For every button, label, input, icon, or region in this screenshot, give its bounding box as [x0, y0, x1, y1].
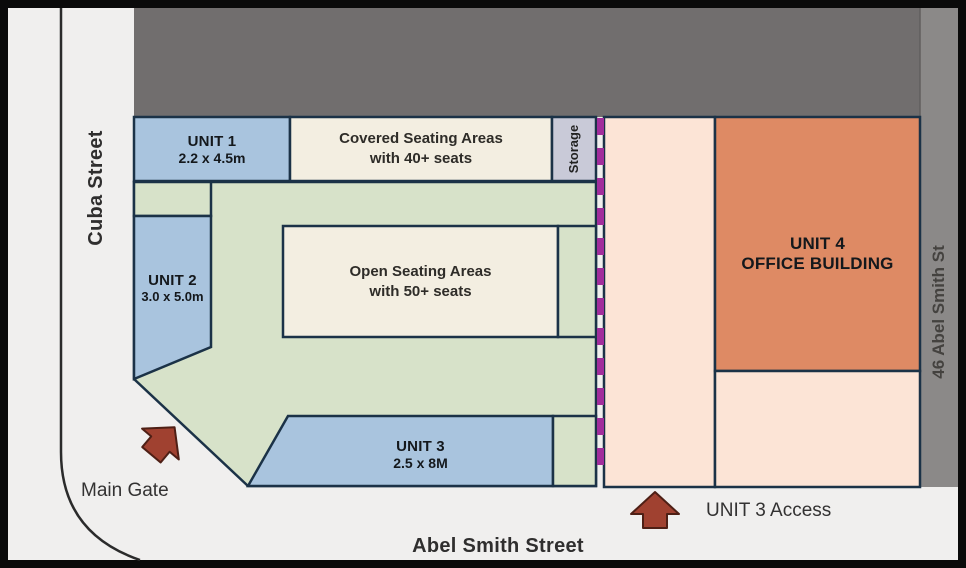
unit2-label: UNIT 2 3.0 x 5.0m — [134, 266, 211, 310]
site-plan: Cuba Street Abel Smith Street 46 Abel Sm… — [0, 0, 966, 568]
abel-smith-46-label: 46 Abel Smith St — [925, 242, 953, 382]
unit3-name: UNIT 3 — [396, 438, 445, 455]
main-gate-label: Main Gate — [81, 480, 169, 502]
unit4-name: UNIT 4 — [790, 234, 845, 254]
covered-seating-line1: Covered Seating Areas — [339, 129, 503, 149]
unit1-name: UNIT 1 — [188, 133, 237, 150]
unit4-type: OFFICE BUILDING — [741, 254, 893, 274]
unit2-dims: 3.0 x 5.0m — [141, 289, 203, 304]
unit3-dims: 2.5 x 8M — [393, 455, 447, 471]
unit1-dims: 2.2 x 4.5m — [179, 150, 246, 166]
unit1-label: UNIT 1 2.2 x 4.5m — [134, 117, 290, 181]
cuba-street-label: Cuba Street — [82, 111, 110, 265]
open-seating-label: Open Seating Areas with 50+ seats — [283, 226, 558, 337]
abel-smith-street-label: Abel Smith Street — [348, 535, 648, 558]
open-seating-line1: Open Seating Areas — [350, 262, 492, 282]
unit3-label: UNIT 3 2.5 x 8M — [288, 428, 553, 480]
small-green-plot — [134, 182, 211, 216]
open-seating-green-annex — [558, 226, 596, 337]
storage-label: Storage — [560, 109, 588, 189]
lower-peach-lot — [715, 371, 920, 487]
access-lane-lot — [604, 117, 715, 487]
unit2-name: UNIT 2 — [148, 272, 197, 289]
unit4-label: UNIT 4 OFFICE BUILDING — [715, 224, 920, 284]
top-building-block — [134, 8, 958, 117]
open-seating-line2: with 50+ seats — [369, 282, 471, 302]
covered-seating-label: Covered Seating Areas with 40+ seats — [290, 117, 552, 181]
unit3-green-annex — [553, 416, 596, 486]
covered-seating-line2: with 40+ seats — [370, 149, 472, 169]
unit3-access-label: UNIT 3 Access — [706, 500, 831, 522]
